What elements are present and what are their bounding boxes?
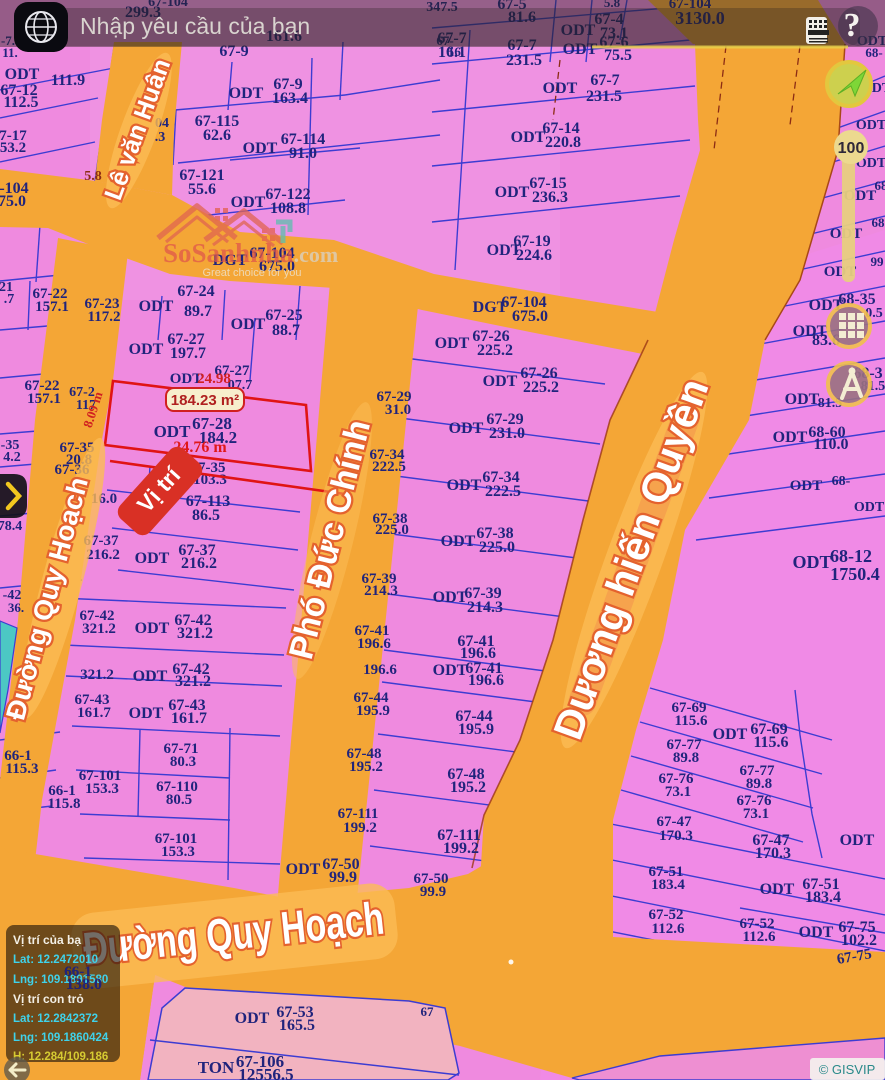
svg-text:ODT: ODT: [129, 341, 164, 358]
svg-text:80.3: 80.3: [170, 754, 196, 770]
svg-text:183.4: 183.4: [805, 889, 841, 906]
svg-text:ODT: ODT: [790, 478, 823, 494]
svg-text:183.4: 183.4: [651, 877, 685, 893]
svg-text:1750.4: 1750.4: [830, 564, 880, 584]
svg-text:220.8: 220.8: [545, 134, 581, 151]
svg-text:ODT: ODT: [231, 194, 266, 211]
svg-text:ODT: ODT: [483, 373, 518, 390]
svg-text:Lat: 12.2842372: Lat: 12.2842372: [13, 1013, 98, 1025]
svg-text:99.9: 99.9: [420, 884, 446, 900]
svg-text:231.5: 231.5: [506, 52, 542, 69]
svg-text:75.5: 75.5: [604, 47, 632, 64]
svg-text:108.8: 108.8: [270, 200, 306, 217]
svg-text:H: 12.284/109.186: H: 12.284/109.186: [13, 1051, 108, 1063]
svg-text:ODT: ODT: [231, 316, 266, 333]
svg-text:222.5: 222.5: [485, 483, 521, 500]
svg-text:225.0: 225.0: [479, 539, 515, 556]
svg-text:?: ?: [844, 7, 861, 44]
svg-text:222.5: 222.5: [372, 459, 406, 475]
svg-text:321.2: 321.2: [82, 621, 116, 637]
svg-text:88.7: 88.7: [272, 322, 300, 339]
svg-text:ODT: ODT: [135, 550, 170, 567]
svg-text:224.6: 224.6: [516, 247, 552, 264]
svg-text:321.2: 321.2: [80, 667, 114, 683]
svg-text:ODT: ODT: [543, 80, 578, 97]
svg-text:111.9: 111.9: [51, 72, 85, 89]
svg-text:115.6: 115.6: [675, 713, 708, 729]
svg-text:231.0: 231.0: [489, 425, 525, 442]
svg-text:62.6: 62.6: [203, 127, 231, 144]
svg-text:102.2: 102.2: [841, 932, 877, 949]
svg-text:4.2: 4.2: [3, 450, 21, 465]
svg-text:199.2: 199.2: [343, 820, 377, 836]
svg-text:ODT: ODT: [235, 1010, 270, 1027]
svg-text:ODT: ODT: [773, 429, 808, 446]
svg-text:112.5: 112.5: [3, 94, 38, 111]
svg-text:ODT: ODT: [449, 420, 484, 437]
svg-text:ODT: ODT: [760, 881, 795, 898]
svg-text:170.3: 170.3: [659, 828, 693, 844]
svg-text:321.2: 321.2: [175, 673, 211, 690]
svg-text:ODT: ODT: [441, 533, 476, 550]
svg-text:184.23 m²: 184.23 m²: [171, 392, 239, 409]
svg-text:TON: TON: [198, 1058, 235, 1077]
svg-text:ODT: ODT: [135, 620, 170, 637]
svg-text:ODT: ODT: [229, 85, 264, 102]
svg-text:68-12: 68-12: [830, 546, 872, 566]
svg-text:216.2: 216.2: [86, 547, 120, 563]
svg-text:112.6: 112.6: [652, 921, 685, 937]
svg-text:100: 100: [838, 140, 865, 157]
svg-text:99.9: 99.9: [329, 869, 357, 886]
svg-text:231.5: 231.5: [586, 88, 622, 105]
svg-text:110.0: 110.0: [813, 436, 848, 453]
svg-text:161.7: 161.7: [171, 710, 207, 727]
svg-text:ODT: ODT: [792, 552, 831, 572]
svg-text:195.2: 195.2: [349, 759, 383, 775]
svg-text:78.4: 78.4: [0, 519, 22, 534]
svg-text:ODT: ODT: [785, 391, 820, 408]
svg-text:73.1: 73.1: [743, 806, 769, 822]
svg-text:68: 68: [875, 178, 885, 193]
svg-text:Vị trí con trỏ: Vị trí con trỏ: [13, 992, 84, 1006]
svg-text:68-: 68-: [865, 45, 882, 60]
svg-text:ODT: ODT: [435, 335, 470, 352]
svg-text:SoSanhnha.com: SoSanhnha.com: [163, 238, 338, 268]
svg-text:ODT: ODT: [854, 500, 885, 515]
svg-text:195.2: 195.2: [450, 779, 486, 796]
svg-text:157.1: 157.1: [27, 391, 61, 407]
svg-text:157.1: 157.1: [35, 299, 69, 315]
svg-text:138.0: 138.0: [66, 976, 102, 993]
svg-text:214.3: 214.3: [364, 583, 398, 599]
svg-text:197.7: 197.7: [170, 345, 206, 362]
svg-text:ODT: ODT: [433, 589, 468, 606]
svg-text:196.6: 196.6: [357, 636, 391, 652]
svg-text:236.3: 236.3: [532, 189, 568, 206]
svg-text:153.3: 153.3: [161, 844, 195, 860]
svg-text:68: 68: [872, 215, 885, 230]
svg-text:67-24: 67-24: [177, 283, 214, 300]
svg-text:112.6: 112.6: [743, 929, 776, 945]
svg-text:ODT: ODT: [856, 118, 885, 133]
svg-text:Lng: 109.1860424: Lng: 109.1860424: [13, 1032, 109, 1044]
svg-text:115.3: 115.3: [6, 761, 39, 777]
svg-text:195.9: 195.9: [458, 721, 494, 738]
svg-text:5.8: 5.8: [84, 169, 102, 184]
svg-text:55.6: 55.6: [188, 181, 216, 198]
svg-text:225.0: 225.0: [375, 522, 409, 538]
svg-text:ODT: ODT: [133, 668, 168, 685]
svg-text:ODT: ODT: [713, 726, 748, 743]
svg-text:.7: .7: [4, 292, 15, 307]
svg-text:170.3: 170.3: [755, 845, 791, 862]
svg-text:73.1: 73.1: [665, 784, 691, 800]
svg-text:ODT: ODT: [433, 662, 468, 679]
svg-text:24.98: 24.98: [197, 371, 231, 387]
svg-text:165.5: 165.5: [279, 1017, 315, 1034]
svg-text:67-7: 67-7: [590, 72, 619, 89]
svg-text:225.2: 225.2: [523, 379, 559, 396]
svg-text:31.0: 31.0: [385, 402, 411, 418]
svg-text:ODT: ODT: [286, 861, 321, 878]
svg-text:321.2: 321.2: [177, 625, 213, 642]
svg-text:161.7: 161.7: [77, 705, 111, 721]
svg-text:Great choice for you: Great choice for you: [202, 267, 301, 279]
svg-text:Vị trí của bạ: Vị trí của bạ: [13, 933, 81, 947]
svg-text:ODT: ODT: [243, 140, 278, 157]
svg-text:11.: 11.: [2, 45, 18, 60]
svg-text:Nhập yêu cầu của bạn: Nhập yêu cầu của bạn: [80, 13, 310, 39]
svg-text:67: 67: [421, 1004, 435, 1019]
svg-text:80.5: 80.5: [166, 792, 192, 808]
svg-text:53.2: 53.2: [0, 140, 26, 156]
svg-text:196.6: 196.6: [363, 662, 397, 678]
svg-text:75.0: 75.0: [0, 193, 26, 210]
svg-text:ODT: ODT: [5, 66, 40, 83]
svg-text:153.3: 153.3: [85, 781, 119, 797]
svg-text:ODT: ODT: [129, 705, 164, 722]
svg-text:ODT: ODT: [495, 184, 530, 201]
svg-text:36.: 36.: [8, 600, 24, 615]
svg-text:115.8: 115.8: [48, 796, 81, 812]
svg-text:86.5: 86.5: [192, 507, 220, 524]
svg-text:225.2: 225.2: [477, 342, 513, 359]
svg-text:89.8: 89.8: [746, 776, 772, 792]
svg-text:163.4: 163.4: [272, 90, 308, 107]
svg-text:12556.5: 12556.5: [238, 1065, 293, 1080]
svg-text:195.9: 195.9: [356, 703, 390, 719]
svg-text:68-: 68-: [832, 474, 851, 489]
svg-text:115.6: 115.6: [753, 734, 788, 751]
svg-text:196.6: 196.6: [468, 672, 504, 689]
svg-text:675.0: 675.0: [512, 308, 548, 325]
svg-text:117.2: 117.2: [88, 309, 121, 325]
svg-text:ODT: ODT: [799, 924, 834, 941]
svg-text:199.2: 199.2: [443, 840, 479, 857]
svg-text:ODT: ODT: [840, 832, 875, 849]
svg-text:© GISVIP: © GISVIP: [819, 1062, 876, 1077]
svg-text:216.2: 216.2: [181, 555, 217, 572]
svg-text:ODT: ODT: [139, 298, 174, 315]
svg-text:214.3: 214.3: [467, 599, 503, 616]
svg-text:89.8: 89.8: [673, 750, 699, 766]
svg-text:91.0: 91.0: [289, 145, 317, 162]
svg-text:89.7: 89.7: [184, 303, 212, 320]
svg-text:99: 99: [871, 254, 885, 269]
svg-text:ODT: ODT: [511, 129, 546, 146]
svg-text:ODT: ODT: [447, 477, 482, 494]
